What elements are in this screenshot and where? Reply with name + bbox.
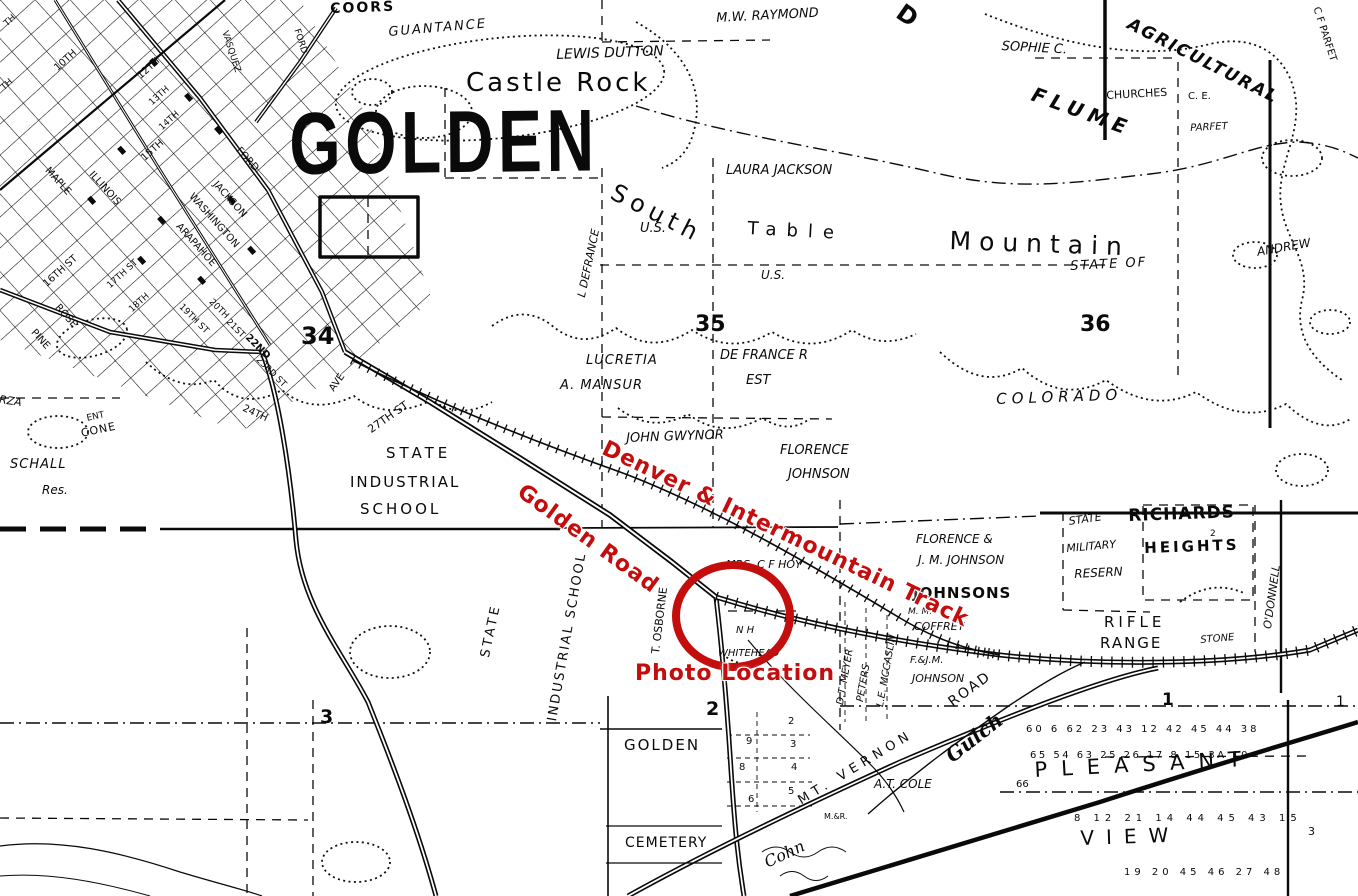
annotation-photo-label: Photo Location bbox=[635, 663, 835, 685]
photo-location-circle bbox=[676, 565, 790, 667]
annotation-layer bbox=[0, 0, 1358, 896]
map-canvas: COORSFORDVASQUEZGUANTANCELEWIS DUTTONCas… bbox=[0, 0, 1358, 896]
